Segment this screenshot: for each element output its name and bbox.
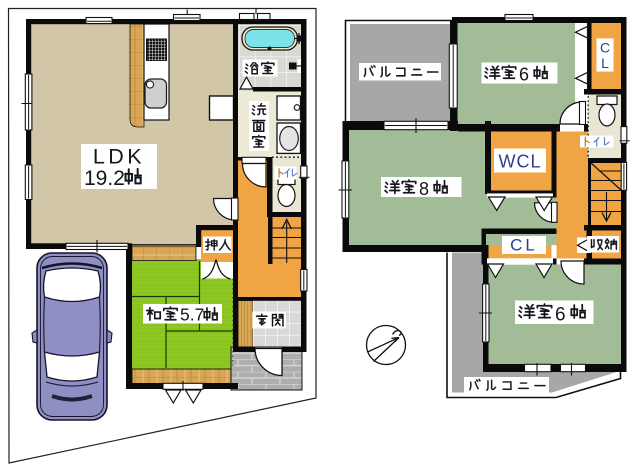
svg-text:6: 6 xyxy=(519,65,529,85)
svg-text:LDK: LDK xyxy=(93,145,145,169)
svg-text:8: 8 xyxy=(419,179,429,199)
svg-text:19.2: 19.2 xyxy=(84,167,125,190)
svg-text:6: 6 xyxy=(555,305,566,326)
svg-text:L: L xyxy=(601,55,609,71)
svg-text:C: C xyxy=(600,40,610,56)
svg-text:5.7: 5.7 xyxy=(180,305,204,325)
svg-text:WCL: WCL xyxy=(499,152,542,172)
svg-text:CL: CL xyxy=(510,236,538,255)
